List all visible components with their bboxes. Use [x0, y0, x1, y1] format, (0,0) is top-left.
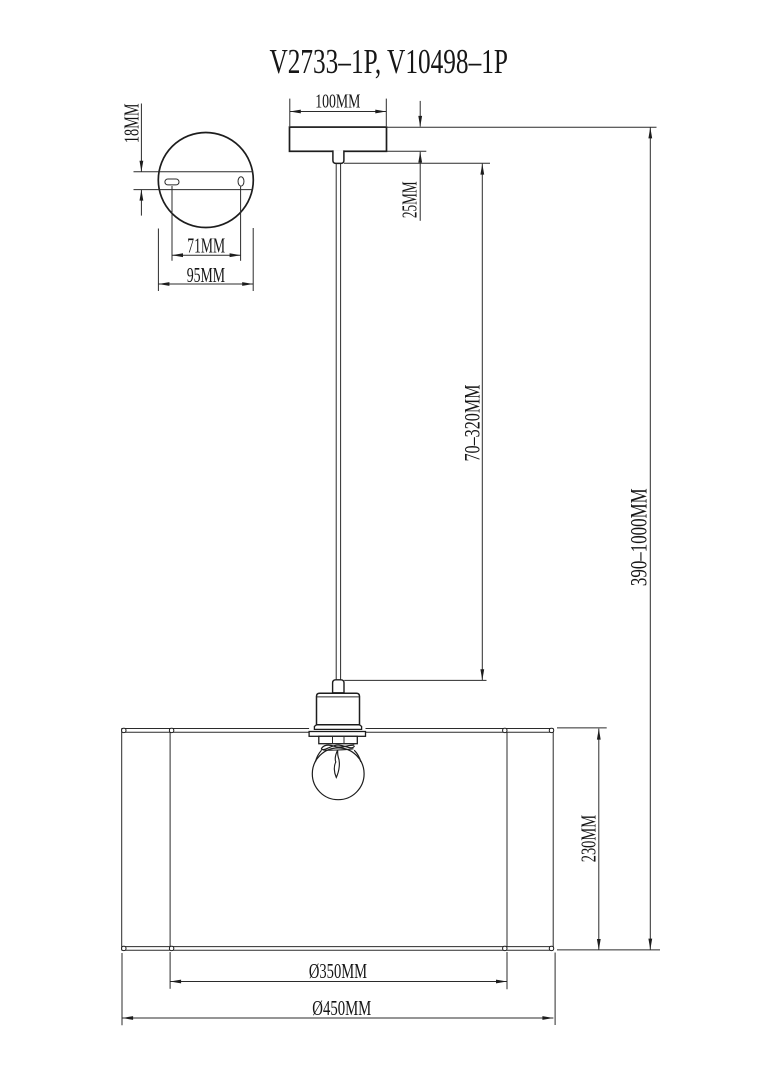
svg-text:71MM: 71MM	[187, 233, 225, 257]
svg-text:Ø350MM: Ø350MM	[309, 959, 367, 983]
svg-text:18MM: 18MM	[120, 103, 144, 143]
svg-text:390–1000MM: 390–1000MM	[627, 488, 652, 586]
svg-text:230MM: 230MM	[577, 815, 601, 863]
svg-text:70–320MM: 70–320MM	[460, 384, 485, 461]
svg-text:V2733–1P, V10498–1P: V2733–1P, V10498–1P	[269, 43, 508, 81]
svg-text:100MM: 100MM	[315, 91, 360, 113]
svg-text:95MM: 95MM	[187, 263, 226, 287]
svg-text:25MM: 25MM	[397, 181, 421, 218]
svg-text:Ø450MM: Ø450MM	[312, 996, 371, 1020]
